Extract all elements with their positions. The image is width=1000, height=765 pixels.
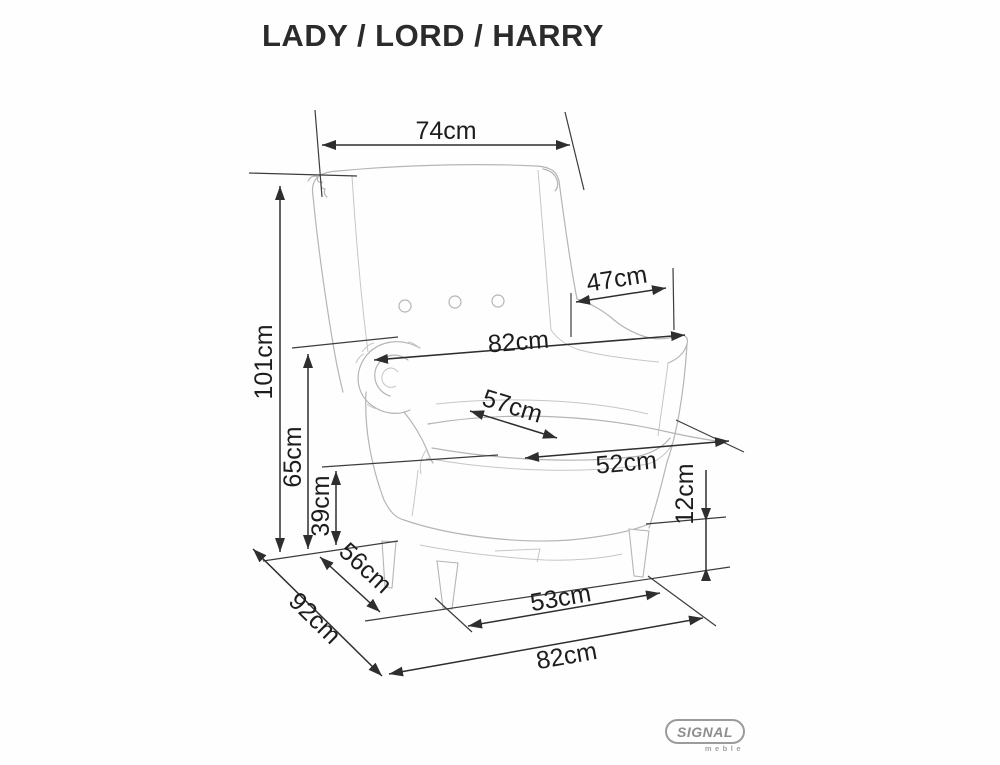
chair-right-wing-inner: [551, 330, 659, 362]
dim-label-width-overall: 82cm: [487, 326, 550, 359]
ext-47-right: [673, 268, 674, 330]
chair-left-base-side: [366, 392, 404, 520]
brand-logo: SIGNAL meble: [665, 719, 749, 753]
chair-button-right: [492, 295, 504, 307]
chair-right-arm-top: [646, 335, 687, 363]
chair-left-inner-crease: [352, 176, 368, 352]
dim-label-width-seat-front: 52cm: [595, 446, 658, 479]
ext-65-top: [292, 337, 398, 348]
chair-diagram-canvas: 74cm 101cm 65cm 39cm 47cm 82cm 57cm 52cm…: [0, 0, 1000, 765]
ext-53-left: [435, 598, 472, 632]
dim-label-depth-seat: 57cm: [479, 384, 546, 429]
dimension-labels: 74cm 101cm 65cm 39cm 47cm 82cm 57cm 52cm…: [250, 117, 699, 675]
dim-label-height-armrest: 65cm: [279, 426, 307, 487]
chair-left-arm-scroll-outer: [358, 342, 420, 414]
ext-top-left-horizontal: [249, 173, 357, 176]
dim-label-width-base: 82cm: [534, 637, 599, 675]
chair-underbase-line-2: [495, 549, 540, 562]
chair-headrest-left-curl: [308, 176, 327, 197]
chair-drawing: [308, 165, 724, 609]
chair-button-middle: [449, 296, 461, 308]
logo-brand-text: SIGNAL: [677, 724, 733, 740]
dim-label-width-leg-span: 53cm: [528, 579, 593, 617]
chair-right-arm-inner: [658, 363, 668, 436]
dim-label-width-top: 74cm: [415, 117, 476, 145]
chair-skirt-bottom: [404, 520, 649, 541]
chair-right-inner-crease: [538, 170, 551, 330]
chair-right-wing: [577, 299, 646, 337]
ext-53-right: [648, 576, 716, 626]
chair-underbase-line-1: [420, 545, 622, 560]
ext-rear-baseline: [263, 541, 398, 561]
chair-skirt-left-corner: [412, 470, 418, 516]
chair-left-arm-scroll-center: [382, 368, 398, 387]
dim-label-height-seat: 39cm: [307, 475, 335, 536]
product-dimension-diagram: LADY / LORD / HARRY: [0, 0, 1000, 765]
chair-left-arm-front: [404, 412, 433, 463]
chair-leg-front-left: [437, 561, 458, 609]
chair-button-left: [399, 300, 411, 312]
chair-leg-front-right: [629, 529, 649, 577]
logo-subtitle-text: meble: [665, 744, 749, 753]
dim-label-height-legs: 12cm: [671, 463, 699, 524]
dim-label-height-total: 101cm: [250, 324, 278, 399]
chair-seat-top-contour: [428, 416, 724, 442]
chair-left-edge: [313, 196, 343, 392]
chair-left-arm-scroll-inner: [375, 355, 408, 396]
chair-seat-left-corner: [420, 450, 426, 474]
ext-74-left: [315, 110, 322, 197]
logo-pill: SIGNAL: [665, 719, 745, 744]
ext-74-right: [565, 112, 584, 190]
dim-label-depth-overall: 92cm: [283, 587, 346, 650]
